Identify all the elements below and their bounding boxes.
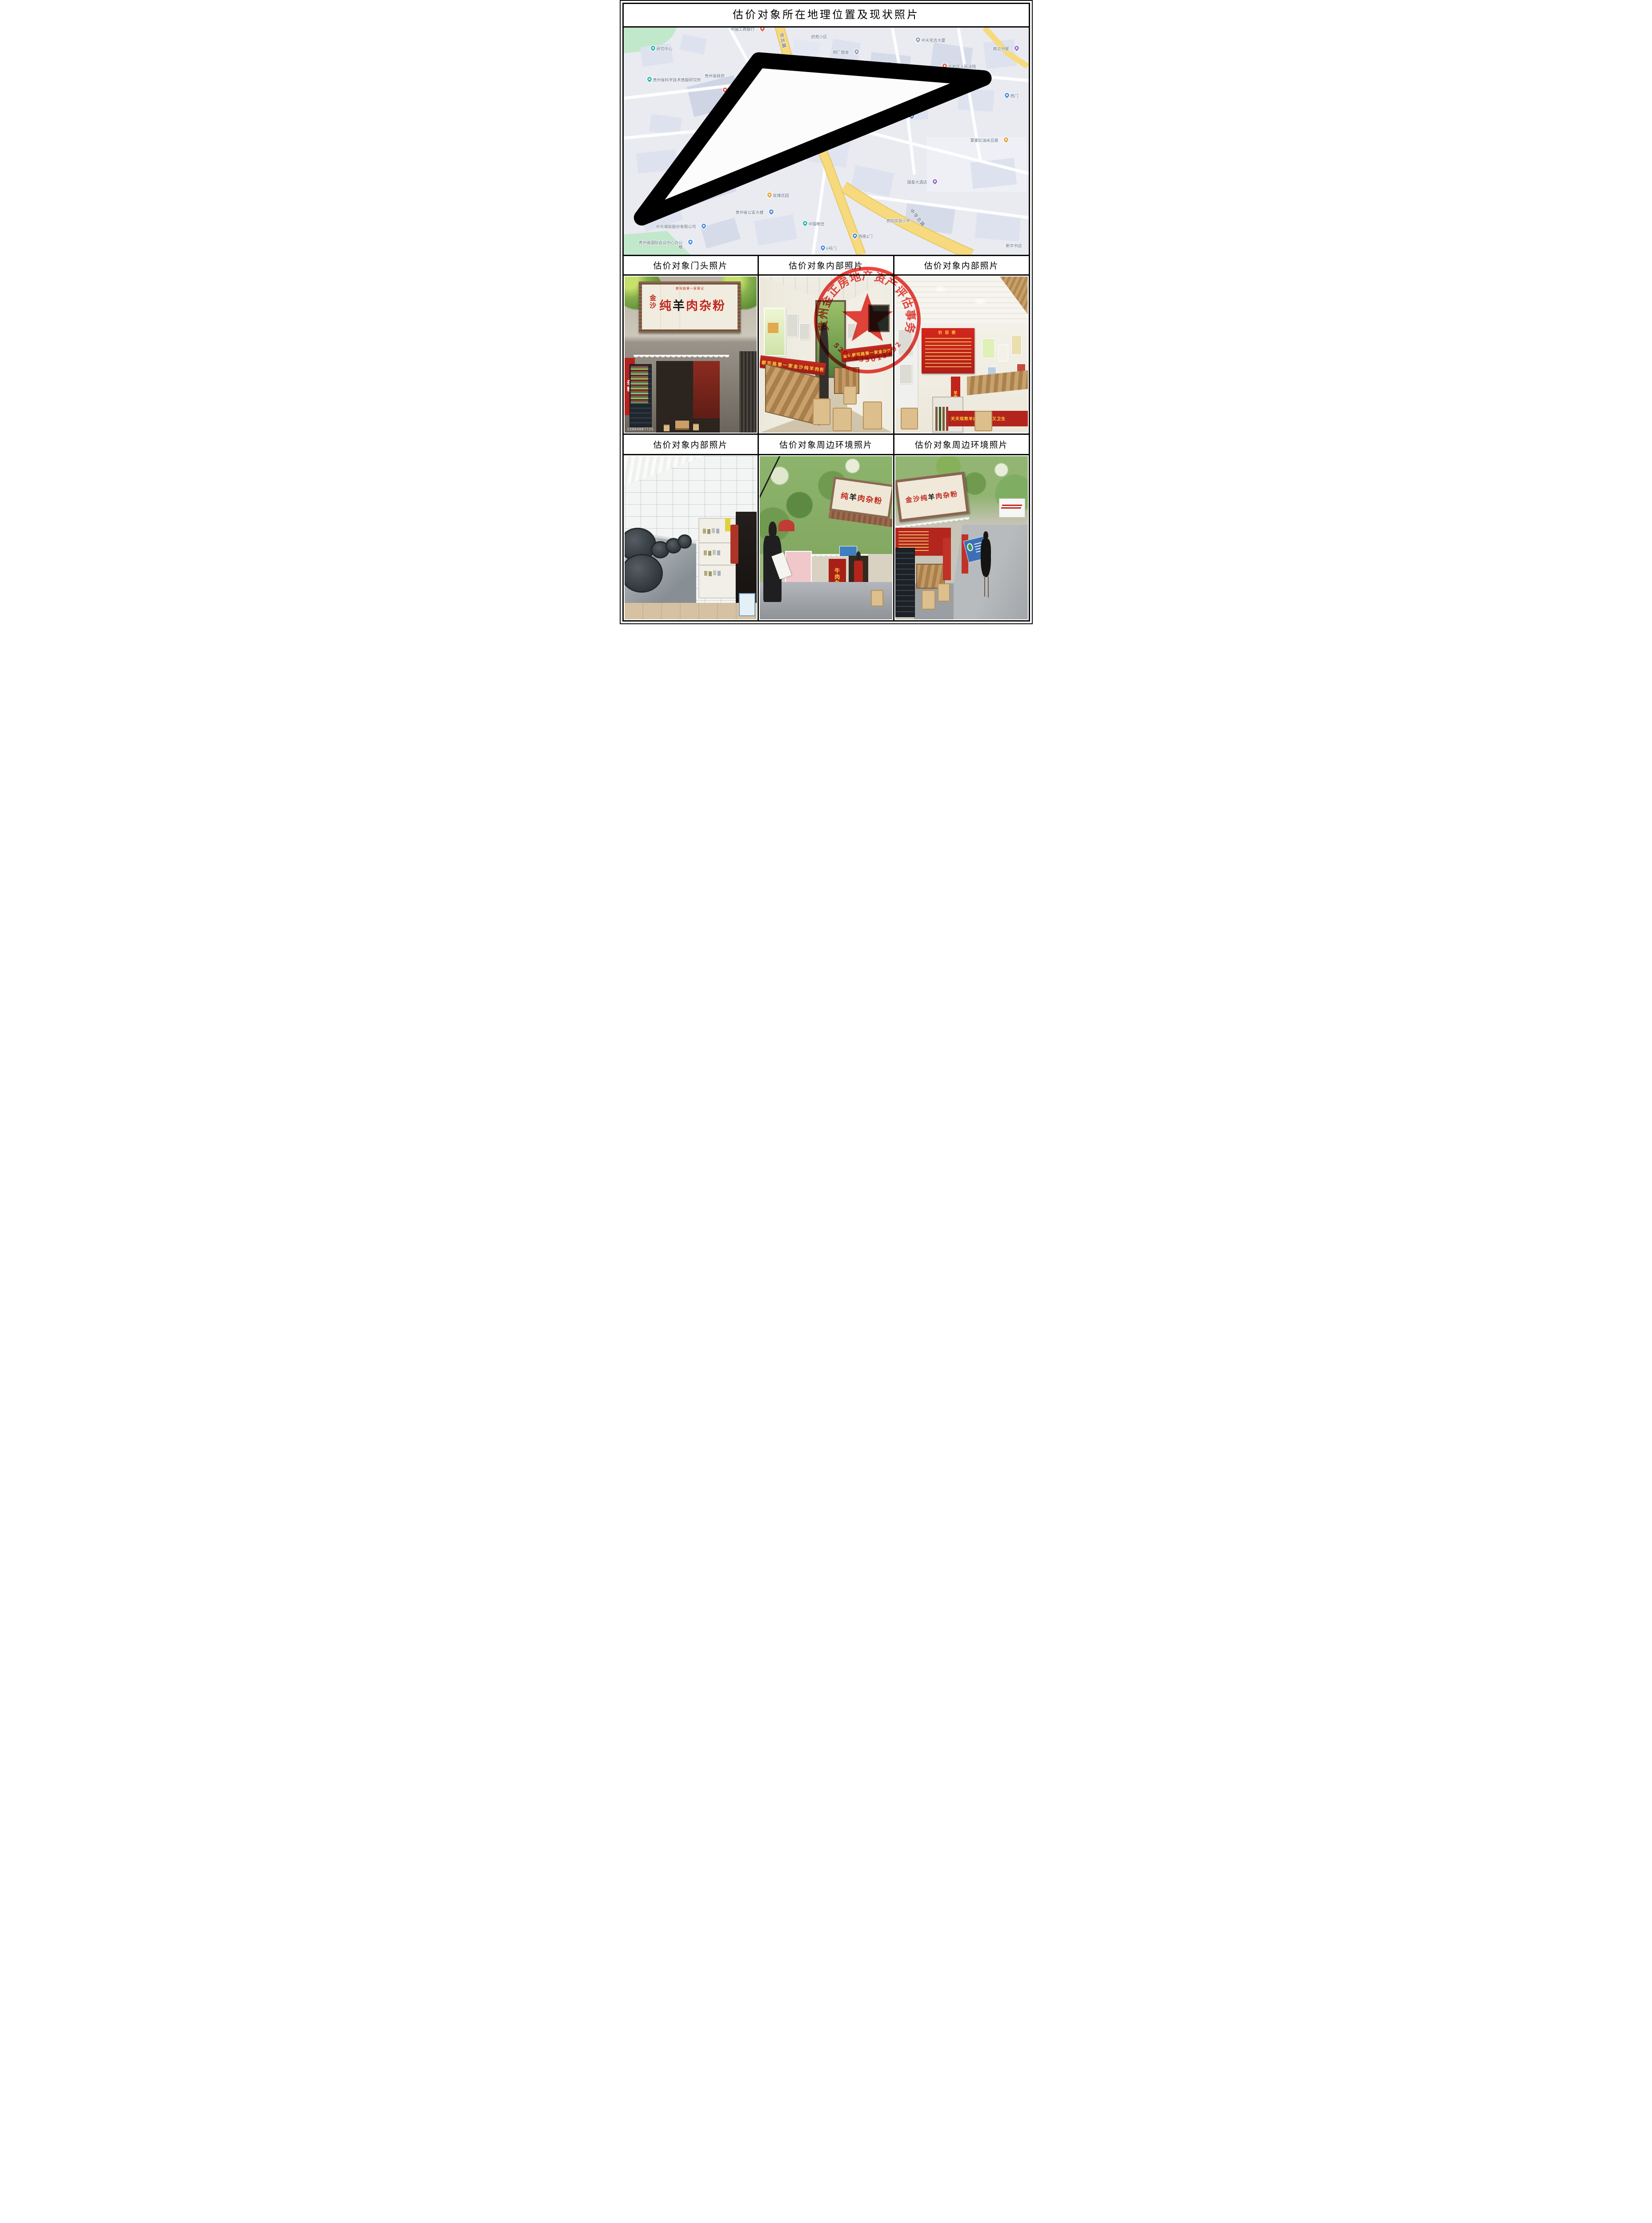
- blackboard: [868, 305, 890, 332]
- woman-black-dress: [980, 531, 992, 597]
- drink-fridge: [630, 364, 652, 427]
- photo-cell-storefront: 都司路第一家黄记 金沙 纯羊肉杂粉 杂粉: [624, 276, 758, 433]
- green-poster: [764, 308, 786, 356]
- stool: [863, 401, 882, 430]
- left-tile-wall: [895, 311, 919, 408]
- photo-row-1: 都司路第一家黄记 金沙 纯羊肉杂粉 杂粉: [624, 274, 1029, 433]
- header-row-2: 估价对象内部照片 估价对象周边环境照片 估价对象周边环境照片: [624, 433, 1029, 454]
- header-interior-2: 估价对象内部照片: [893, 256, 1029, 274]
- title-row: 估价对象所在地理位置及现状照片: [624, 4, 1029, 26]
- storefront-signboard: 都司路第一家黄记 金沙 纯羊肉杂粉: [639, 281, 741, 333]
- stool: [901, 408, 918, 430]
- white-brand-sign: [999, 498, 1025, 517]
- photo-cell-kitchen: [624, 455, 758, 620]
- header-surroundings-2: 估价对象周边环境照片: [893, 435, 1029, 454]
- banner-right-text: 金记都司路第一家金沙纯: [842, 347, 890, 359]
- vending-fridge: [895, 548, 915, 617]
- photo-row-2: 纯羊肉杂粉 牛肉杂粉: [624, 454, 1029, 620]
- interior-photo-2: 价目表 羊肉粉 天天现熬羊肉汤 安全又卫生: [895, 277, 1028, 433]
- menu-rows: [925, 338, 972, 369]
- street-photo-2: 金沙纯羊肉杂粉: [895, 456, 1028, 619]
- shop-doorway: [656, 361, 720, 433]
- header-row-1: 估价对象门头照片 估价对象内部照片 估价对象内部照片: [624, 255, 1029, 274]
- interior-photo-1: 都司路第一家金沙纯羊肉粉 金记都司路第一家金沙纯: [760, 277, 892, 433]
- photo-cell-street-1: 纯羊肉杂粉 牛肉杂粉: [758, 455, 893, 620]
- doorway-red-wall: [693, 361, 720, 418]
- poster-green: [982, 339, 994, 357]
- location-map: 中国工商银行研究中心贵州省科学技术情报研究所贵州省政府办公厅PA号门府苑小区百果…: [624, 28, 1029, 255]
- map-row: 中国工商银行研究中心贵州省科学技术情报研究所贵州省政府办公厅PA号门府苑小区百果…: [624, 26, 1029, 255]
- photo-cell-street-2: 金沙纯羊肉杂粉: [893, 455, 1029, 620]
- red-cloth: [730, 525, 738, 564]
- report-table: 估价对象所在地理位置及现状照片: [622, 3, 1030, 622]
- floor: [625, 603, 757, 619]
- header-interior-3: 估价对象内部照片: [624, 435, 758, 454]
- signboard-brand: 金沙: [648, 294, 657, 309]
- sign-chars-red: 金沙纯: [905, 494, 929, 504]
- man-head: [769, 522, 776, 538]
- storefront-photo: 都司路第一家黄记 金沙 纯羊肉杂粉 杂粉: [625, 277, 757, 433]
- blue-sign: [839, 546, 858, 557]
- shop-sign: 金沙纯羊肉杂粉: [895, 472, 969, 522]
- poster-white: [998, 345, 1008, 361]
- sign-chars-red: 肉杂粉: [857, 494, 883, 506]
- signboard-main-text: 纯羊肉杂粉: [659, 296, 726, 313]
- stool: [843, 386, 857, 405]
- yellow-bag: [725, 518, 730, 531]
- stool: [813, 398, 830, 425]
- shop-sign-text: 金沙纯羊肉杂粉: [905, 489, 958, 505]
- stool: [938, 583, 950, 602]
- poster: [847, 323, 856, 338]
- sign-chars-red: 肉杂粉: [935, 491, 958, 501]
- poster: [799, 323, 810, 340]
- man-silhouette: [761, 522, 784, 616]
- stool: [974, 411, 992, 431]
- vertical-banner: [943, 538, 951, 580]
- poster: [786, 314, 798, 337]
- blue-box: [739, 593, 755, 616]
- woman-dress: [981, 539, 990, 577]
- wood-counter: [967, 370, 1028, 395]
- stool: [871, 590, 883, 606]
- awning: [634, 355, 729, 359]
- stool: [833, 408, 852, 431]
- poster-yellow: [1012, 336, 1021, 354]
- window-grille: [739, 351, 757, 433]
- header-interior-1: 估价对象内部照片: [758, 256, 893, 274]
- map-callout-tail: [624, 28, 1029, 255]
- appraisal-photo-page: 估价对象所在地理位置及现状照片: [620, 0, 1033, 624]
- woman-legs: [984, 576, 985, 597]
- sign-chars-red: 肉杂粉: [686, 299, 726, 313]
- poster: [899, 364, 912, 384]
- photo-cell-interior-2: 价目表 羊肉粉 天天现熬羊肉汤 安全又卫生: [893, 276, 1029, 433]
- stool: [693, 424, 699, 430]
- photo-cell-interior-1: 都司路第一家金沙纯羊肉粉 金记都司路第一家金沙纯: [758, 276, 893, 433]
- phone-number-text: 13984887725: [627, 427, 654, 431]
- shop-sign-text: 纯羊肉杂粉: [840, 490, 884, 506]
- kitchen-photo: [625, 456, 757, 619]
- street-photo-1: 纯羊肉杂粉 牛肉杂粉: [760, 456, 892, 619]
- header-surroundings-1: 估价对象周边环境照片: [758, 435, 893, 454]
- sign-char-red: 纯: [659, 299, 673, 313]
- signboard-small-text: 都司路第一家黄记: [642, 286, 738, 291]
- page-title: 估价对象所在地理位置及现状照片: [624, 4, 1029, 26]
- table: [675, 421, 689, 429]
- poster: [898, 329, 912, 355]
- signboard-face: 都司路第一家黄记 金沙 纯羊肉杂粉: [642, 285, 738, 330]
- sign-char-black: 羊: [927, 494, 936, 502]
- menu-title: 价目表: [922, 329, 974, 335]
- sign-char-black: 羊: [673, 299, 686, 313]
- pot: [678, 534, 692, 549]
- red-menu-board: 价目表: [922, 328, 974, 373]
- stool: [664, 425, 670, 431]
- header-storefront: 估价对象门头照片: [624, 256, 758, 274]
- stool: [922, 590, 935, 610]
